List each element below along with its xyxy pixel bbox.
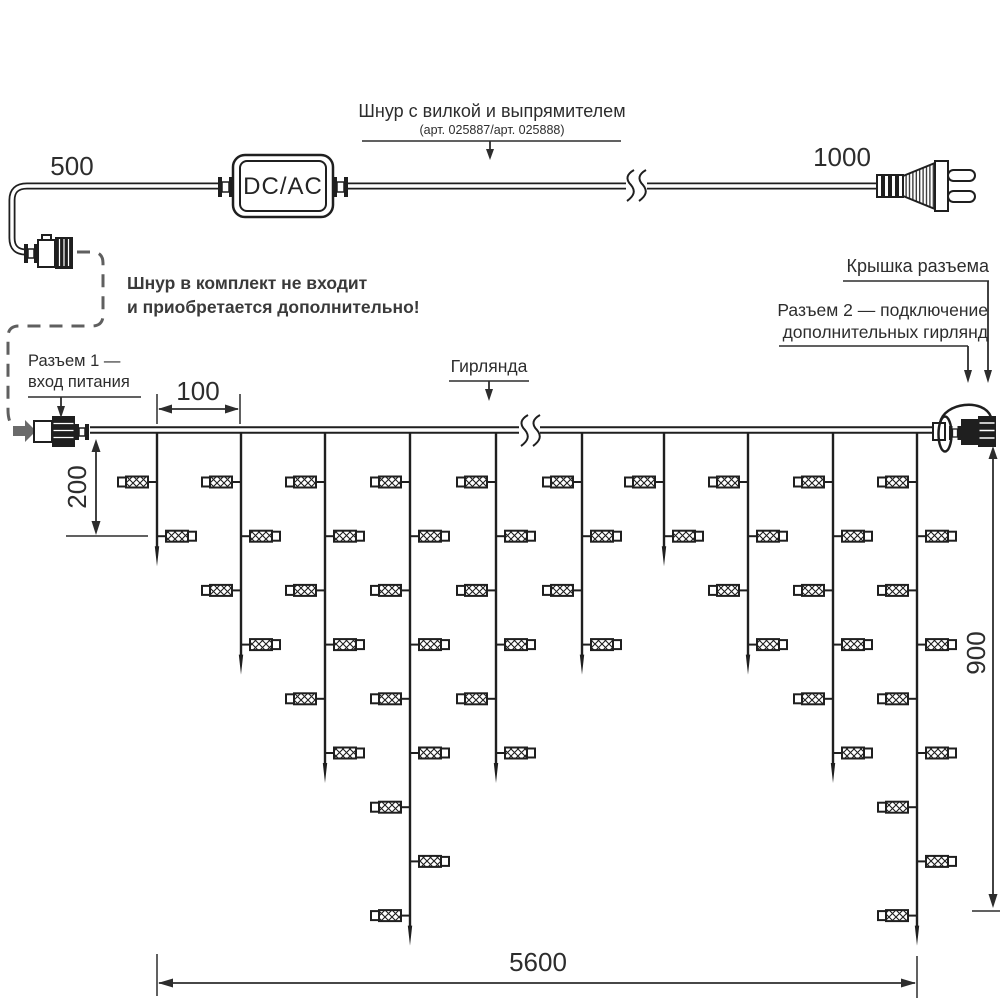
- dimension-5600: 5600: [157, 947, 917, 998]
- lamp-cap: [527, 532, 535, 541]
- garland-break-symbol: [519, 415, 540, 449]
- dcac-adapter: DC/AC: [218, 155, 348, 217]
- drop-wire-tip: [831, 763, 835, 783]
- lamp-bulb: [551, 477, 573, 488]
- lamp-bulb: [802, 585, 824, 596]
- connector1: [34, 416, 89, 447]
- lamp-cap: [878, 803, 886, 812]
- drop-wire-tip: [155, 546, 159, 566]
- lamp-cap: [356, 640, 364, 649]
- dim-200-label: 200: [62, 465, 92, 508]
- drop-wire-tip: [746, 655, 750, 675]
- cord-subtitle: (арт. 025887/арт. 025888): [419, 123, 564, 137]
- lamp-cap: [794, 478, 802, 487]
- lamp-cap: [864, 532, 872, 541]
- lamp-bulb: [294, 693, 316, 704]
- lamp-cap: [779, 532, 787, 541]
- lamp-bulb: [294, 585, 316, 596]
- lamp-cap: [613, 640, 621, 649]
- garland-schematic-svg: 500 DC/AC: [0, 0, 1000, 1000]
- lamp-cap: [948, 749, 956, 758]
- lamp-cap: [457, 694, 465, 703]
- lamp-bulb: [419, 856, 441, 867]
- connector1-callout: Разъем 1 — вход питания: [28, 352, 141, 418]
- lamp-bulb: [757, 531, 779, 542]
- lamp-bulb: [419, 531, 441, 542]
- connector2: [933, 405, 996, 452]
- lamp-bulb: [717, 585, 739, 596]
- lamp-bulb: [886, 693, 908, 704]
- lamp-bulb: [126, 477, 148, 488]
- lamp-bulb: [210, 477, 232, 488]
- lamp-cap: [371, 586, 379, 595]
- lamp-cap: [779, 640, 787, 649]
- lamp-bulb: [465, 477, 487, 488]
- lamp-cap: [441, 857, 449, 866]
- lamp-bulb: [379, 910, 401, 921]
- lamp-cap: [864, 640, 872, 649]
- lamp-cap: [118, 478, 126, 487]
- plug-pin-top: [948, 170, 975, 181]
- lamp-cap: [441, 640, 449, 649]
- connector2-callout: Разъем 2 — подключение дополнительных ги…: [777, 300, 988, 383]
- lamp-bulb: [842, 748, 864, 759]
- garland: Разъем 1 — вход питания Гирлянда Крышка …: [13, 256, 1000, 998]
- lamp-bulb: [505, 748, 527, 759]
- lamp-cap: [371, 911, 379, 920]
- plug-face: [935, 161, 948, 211]
- lamp-bulb: [926, 639, 948, 650]
- lamp-cap: [356, 532, 364, 541]
- dimension-100: 100: [157, 376, 240, 424]
- lamp-cap: [371, 803, 379, 812]
- lamp-bulb: [926, 531, 948, 542]
- lamp-cap: [878, 478, 886, 487]
- lamp-cap: [202, 586, 210, 595]
- drop-wire-tip: [239, 655, 243, 675]
- note-line1: Шнур в комплект не входит: [127, 273, 368, 293]
- lamp-cap: [613, 532, 621, 541]
- lamp-cap: [948, 640, 956, 649]
- lamp-bulb: [505, 531, 527, 542]
- euro-plug: [877, 161, 975, 211]
- lamp-cap: [878, 586, 886, 595]
- lamp-cap: [188, 532, 196, 541]
- lamp-cap: [527, 749, 535, 758]
- cord-callout-arrow: [486, 149, 494, 160]
- lamp-bulb: [334, 531, 356, 542]
- lamp-bulb: [842, 531, 864, 542]
- lamp-bulb: [379, 585, 401, 596]
- lamp-bulb: [379, 693, 401, 704]
- dim-500-label: 500: [50, 151, 93, 181]
- lamp-cap: [272, 640, 280, 649]
- connector2-label-line1: Разъем 2 — подключение: [777, 300, 988, 320]
- lamp-cap: [543, 478, 551, 487]
- lamp-bulb: [802, 693, 824, 704]
- lamp-cap: [709, 586, 717, 595]
- garland-label: Гирлянда: [451, 356, 528, 376]
- plug-grip: [903, 163, 935, 209]
- lamp-bulb: [379, 477, 401, 488]
- lamp-bulb: [633, 477, 655, 488]
- note-line2: и приобретается дополнительно!: [127, 297, 420, 317]
- lamp-cap: [948, 857, 956, 866]
- lamp-bulb: [166, 531, 188, 542]
- drop-wire-tip: [494, 763, 498, 783]
- dashed-connection-path: [8, 252, 103, 430]
- lamp-bulb: [419, 639, 441, 650]
- garland-drops: [118, 433, 956, 946]
- connector1-label-line2: вход питания: [28, 373, 130, 391]
- lamp-cap: [695, 532, 703, 541]
- lamp-bulb: [505, 639, 527, 650]
- lamp-bulb: [673, 531, 695, 542]
- lamp-cap: [272, 532, 280, 541]
- lamp-bulb: [717, 477, 739, 488]
- lamp-bulb: [250, 639, 272, 650]
- lamp-cap: [878, 911, 886, 920]
- lamp-cap: [864, 749, 872, 758]
- lamp-cap: [625, 478, 633, 487]
- lamp-cap: [527, 640, 535, 649]
- lamp-bulb: [886, 802, 908, 813]
- lamp-bulb: [419, 748, 441, 759]
- cap-label: Крышка разъема: [847, 256, 990, 276]
- connector1-label-line1: Разъем 1 —: [28, 352, 121, 370]
- lamp-bulb: [551, 585, 573, 596]
- lamp-bulb: [465, 585, 487, 596]
- plug-pin-bottom: [948, 191, 975, 202]
- lamp-bulb: [210, 585, 232, 596]
- lamp-cap: [441, 749, 449, 758]
- lamp-bulb: [926, 748, 948, 759]
- dim-1000-label: 1000: [813, 142, 871, 172]
- lamp-cap: [286, 694, 294, 703]
- lamp-cap: [371, 478, 379, 487]
- lamp-cap: [709, 478, 717, 487]
- lamp-bulb: [886, 477, 908, 488]
- diagram-page: 500 DC/AC: [0, 0, 1000, 1000]
- lamp-bulb: [757, 639, 779, 650]
- lamp-cap: [371, 694, 379, 703]
- lamp-cap: [286, 478, 294, 487]
- drop-wire-tip: [580, 655, 584, 675]
- lamp-cap: [202, 478, 210, 487]
- dimension-900: 900: [961, 446, 1000, 911]
- connector2-body: [961, 419, 978, 445]
- lamp-cap: [794, 586, 802, 595]
- lamp-cap: [457, 478, 465, 487]
- lamp-cap: [878, 694, 886, 703]
- lamp-bulb: [802, 477, 824, 488]
- dim-900-label: 900: [961, 631, 991, 674]
- dim-100-label: 100: [176, 376, 219, 406]
- connector-cap: [978, 416, 996, 447]
- drop-wire-tip: [915, 926, 919, 946]
- lamp-cap: [286, 586, 294, 595]
- lamp-cap: [543, 586, 551, 595]
- power-in-arrow: [13, 420, 36, 442]
- lamp-bulb: [842, 639, 864, 650]
- lamp-bulb: [334, 639, 356, 650]
- lamp-bulb: [926, 856, 948, 867]
- lamp-bulb: [334, 748, 356, 759]
- drop-wire-tip: [662, 546, 666, 566]
- drop-wire-tip: [408, 926, 412, 946]
- connector2-label-line2: дополнительных гирлянд: [783, 322, 988, 342]
- cord-end-connector: [24, 235, 73, 269]
- drop-wire-tip: [323, 763, 327, 783]
- lamp-cap: [441, 532, 449, 541]
- lamp-cap: [356, 749, 364, 758]
- lamp-bulb: [591, 531, 613, 542]
- garland-callout: Гирлянда: [449, 356, 529, 401]
- lamp-bulb: [886, 910, 908, 921]
- lamp-bulb: [465, 693, 487, 704]
- lamp-cap: [457, 586, 465, 595]
- cord-title: Шнур с вилкой и выпрямителем: [358, 101, 625, 121]
- cord-callout: Шнур с вилкой и выпрямителем (арт. 02588…: [358, 101, 625, 160]
- cord-break-symbol: [626, 170, 647, 202]
- lamp-bulb: [379, 802, 401, 813]
- dcac-label: DC/AC: [243, 173, 323, 200]
- lamp-bulb: [294, 477, 316, 488]
- lamp-bulb: [886, 585, 908, 596]
- lamp-cap: [794, 694, 802, 703]
- lamp-bulb: [591, 639, 613, 650]
- lamp-cap: [948, 532, 956, 541]
- lamp-bulb: [250, 531, 272, 542]
- dim-5600-label: 5600: [509, 947, 567, 977]
